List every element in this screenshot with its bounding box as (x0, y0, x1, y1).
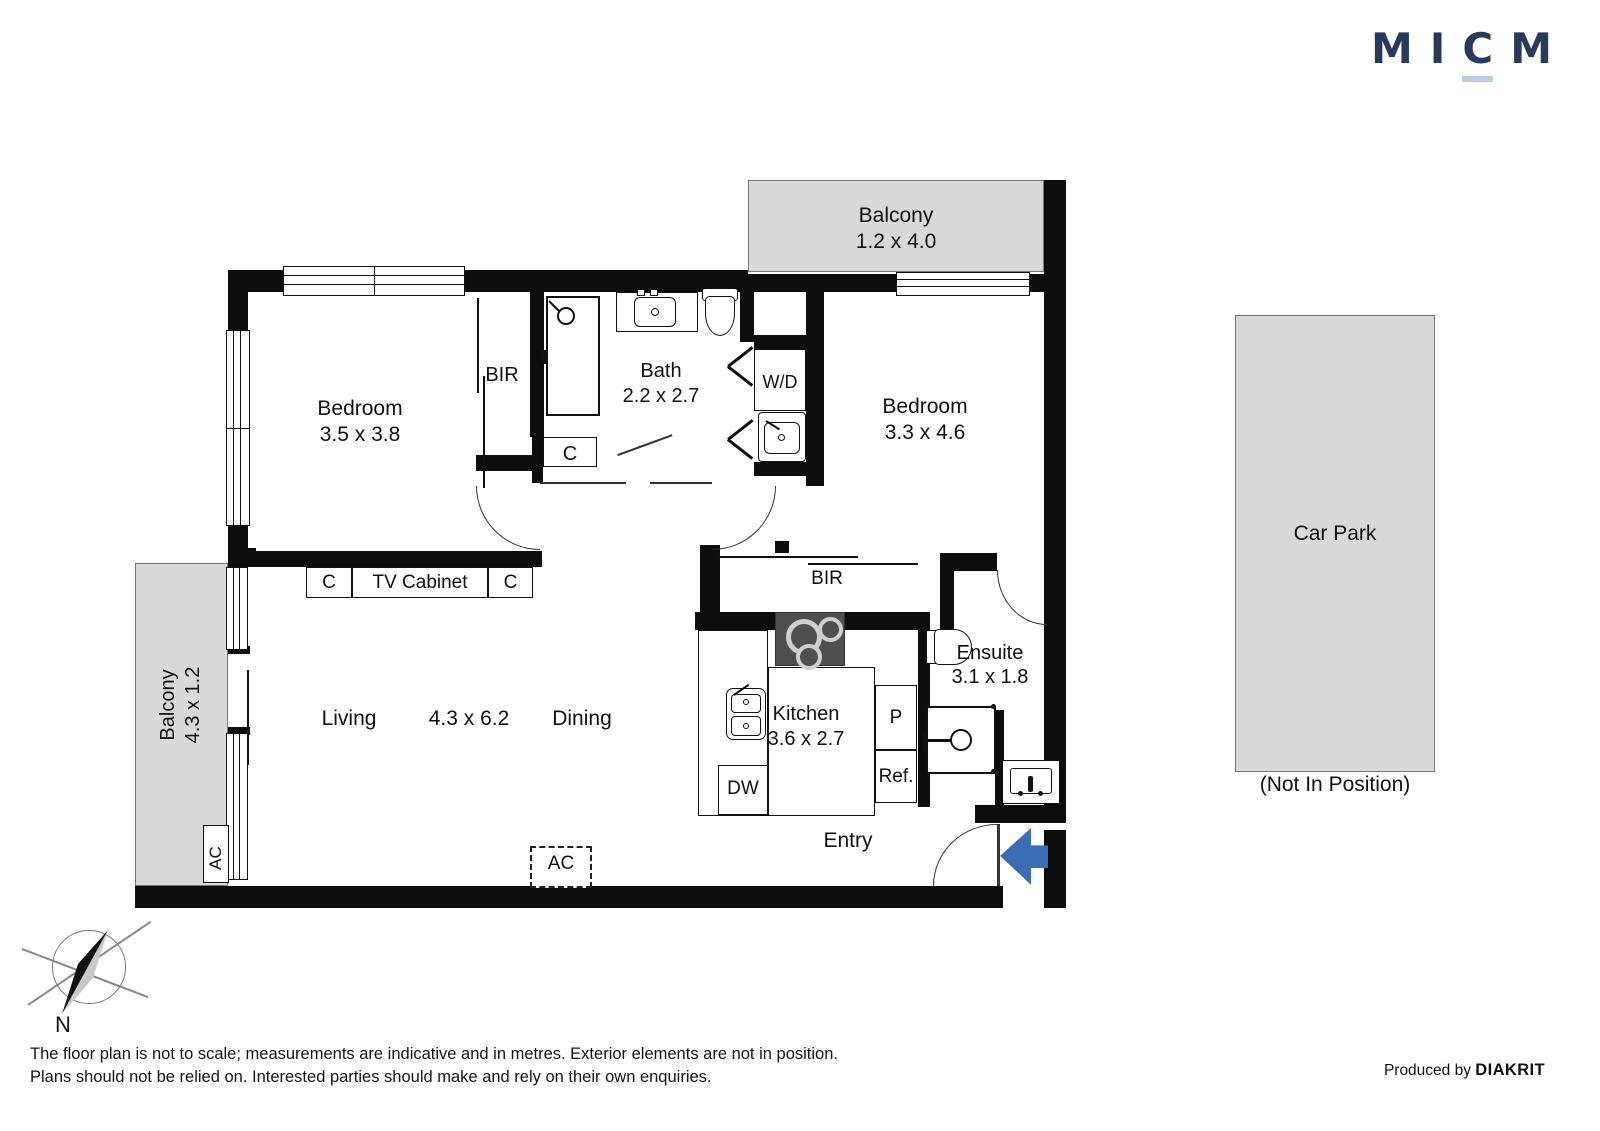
bath-door-leaf (617, 434, 672, 456)
shower-corner-dot (924, 704, 929, 709)
floor-plan-page: N Balcony 1.2 x 4.0 Bedroom 3.5 x 3.8 BI… (0, 0, 1600, 1131)
room-name: Ensuite (920, 641, 1060, 665)
bedroom1-left-window (226, 330, 250, 526)
bedroom1-top-window (283, 266, 465, 296)
bir1-label: BIR (478, 362, 526, 388)
bir1-sliding-door (483, 376, 485, 488)
balcony-top-label: Balcony 1.2 x 4.0 (796, 203, 996, 255)
bedroom2-door-leaf (650, 482, 712, 484)
room-name: Bath (591, 359, 731, 384)
bedroom2-door-arc (712, 486, 776, 550)
car-park-label: Car Park (1235, 521, 1435, 547)
room-dims: 3.1 x 1.8 (920, 665, 1060, 689)
entry-label: Entry (798, 828, 898, 854)
room-name: Balcony (156, 625, 181, 785)
room-name: Bedroom (260, 396, 460, 422)
tv-cabinet-label: TV Cabinet (352, 572, 488, 594)
dining-label: Dining (532, 706, 632, 732)
living-label: Living (299, 706, 399, 732)
room-name: Kitchen (736, 702, 876, 727)
bedroom1-label: Bedroom 3.5 x 3.8 (260, 396, 460, 448)
bifold-door-icon (727, 346, 753, 367)
entry-door-arc (933, 824, 997, 886)
shower-handle-icon (541, 350, 546, 364)
dishwasher-label: DW (718, 778, 768, 800)
hall-closet-label: C (543, 441, 597, 467)
room-dims: 3.5 x 3.8 (260, 422, 460, 448)
tap-dot-icon (1018, 791, 1023, 796)
living-sliding-door (247, 670, 249, 765)
toilet-bowl-icon (705, 296, 735, 336)
living-balcony-window-1 (226, 567, 248, 650)
room-dims: 2.2 x 2.7 (591, 384, 731, 409)
disclaimer-text: The floor plan is not to scale; measurem… (30, 1043, 980, 1088)
diakrit-brand: DIAKRIT (1475, 1061, 1545, 1079)
bifold-door-icon (727, 438, 753, 459)
logo-letter: I (1430, 24, 1446, 73)
compass-north-label: N (48, 1012, 78, 1038)
bedroom1-door-leaf (540, 482, 626, 484)
bath-label: Bath 2.2 x 2.7 (591, 359, 731, 409)
closet-right-label: C (488, 572, 533, 594)
room-dims: 3.3 x 4.6 (825, 420, 1025, 446)
ensuite-door-arc (997, 570, 1047, 625)
bifold-door-icon (727, 365, 753, 386)
ensuite-label: Ensuite 3.1 x 1.8 (920, 641, 1060, 689)
bir2-label: BIR (800, 568, 854, 590)
bedroom1-door-arc (476, 486, 540, 550)
burner-icon (796, 644, 822, 670)
logo-letter: M (1371, 24, 1413, 73)
entry-arrow-icon (1000, 828, 1050, 886)
balcony-left-label: Balcony 4.3 x 1.2 (156, 625, 206, 785)
living-dims-label: 4.3 x 6.2 (419, 706, 519, 732)
disclaimer-line-2: Plans should not be relied on. Intereste… (30, 1066, 980, 1089)
disclaimer-line-1: The floor plan is not to scale; measurem… (30, 1043, 980, 1066)
shower-head-icon (950, 729, 972, 751)
pantry-label: P (875, 707, 917, 729)
room-name: Bedroom (825, 394, 1025, 420)
room-name: Balcony (796, 203, 996, 229)
tap-dot-icon (1038, 791, 1043, 796)
shower-corner-dot (991, 769, 996, 774)
faucet-icon (778, 434, 785, 441)
living-balcony-window-2 (226, 733, 248, 880)
faucet-icon (651, 308, 659, 316)
shower-tap-icon (923, 730, 927, 751)
ac-side-label: AC (203, 828, 229, 888)
room-dims: 4.3 x 1.2 (181, 625, 206, 785)
bir2-sliding-door (718, 556, 858, 558)
produced-by: Produced by DIAKRIT (1245, 1061, 1545, 1080)
closet-left-label: C (306, 572, 352, 594)
bedroom2-top-window (896, 272, 1030, 296)
shower-corner-dot (991, 704, 996, 709)
room-dims: 3.6 x 2.7 (736, 727, 876, 752)
bedroom2-label: Bedroom 3.3 x 4.6 (825, 394, 1025, 446)
bifold-door-icon (727, 419, 753, 440)
tap-icon (637, 289, 645, 296)
fridge-label: Ref. (870, 766, 922, 788)
faucet-icon (1028, 776, 1033, 792)
entry-door-leaf (997, 824, 1000, 886)
burner-icon (818, 617, 843, 642)
car-park-note: (Not In Position) (1224, 772, 1446, 798)
ac-bottom-label: AC (530, 853, 592, 875)
tap-icon (650, 289, 658, 296)
produced-by-text: Produced by (1384, 1062, 1471, 1079)
logo-letter-underlined: C (1462, 24, 1493, 82)
washer-dryer-label: W/D (754, 369, 806, 395)
room-dims: 1.2 x 4.0 (796, 229, 996, 255)
kitchen-label: Kitchen 3.6 x 2.7 (736, 702, 876, 752)
logo-letter: M (1510, 24, 1552, 73)
micm-logo: M I C M (1372, 24, 1552, 80)
bir2-sliding-door (808, 563, 918, 565)
